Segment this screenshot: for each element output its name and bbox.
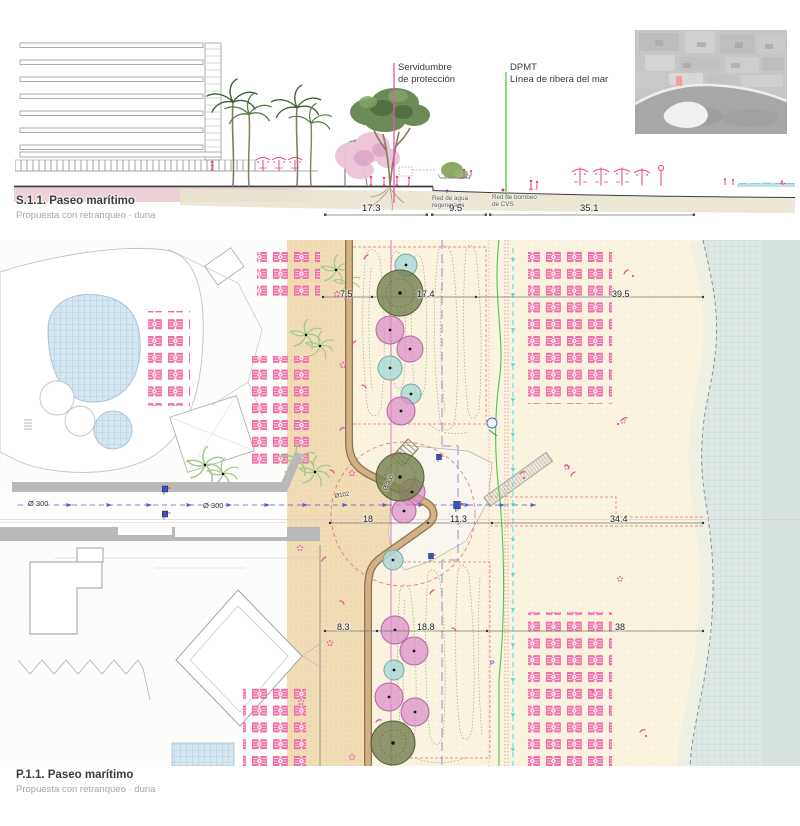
minimap-site-marker (676, 76, 682, 86)
pipe-label-1: Ø 300 (28, 498, 48, 510)
plan-dim-34-4: 34.4 (610, 514, 628, 526)
plan-dim-38: 38 (615, 622, 625, 634)
terrace-grid (148, 311, 190, 406)
section-building (20, 43, 221, 160)
pump-pipe-dot (502, 189, 505, 192)
plan-dim-7-5: 7.5 (340, 289, 353, 301)
plan-drawing (0, 240, 800, 766)
section-arcade (15, 160, 257, 171)
beach-sunbed-grid-bottom (528, 612, 612, 766)
section-subtitle: Propuesta con retranqueo · duna (16, 210, 155, 222)
beach-umbrella-icons (572, 165, 664, 186)
servidumbre-label: Servidumbre de protección (398, 62, 455, 85)
lower-pool (172, 743, 234, 766)
terrace-umbrella-icons (256, 158, 302, 172)
location-minimap (635, 30, 787, 134)
terrace-grid (243, 684, 306, 766)
water-pipe-dot (446, 190, 449, 193)
plan-dim-11-3: 11.3 (450, 514, 467, 526)
red-bombeo-label: Red de bombeo de CVS (492, 194, 537, 208)
section-dim-35-1: 35.1 (580, 203, 599, 215)
plan-dim-17-4: 17.4 (417, 289, 435, 301)
dpmt-label: DPMT Línea de ribera del mar (510, 62, 608, 85)
parking-letter: P (490, 658, 494, 670)
terrace-grid (257, 250, 320, 302)
shower-pole-icon (658, 165, 663, 186)
plan-subtitle: Propuesta con retranqueo · duna (16, 784, 155, 796)
plan-dim-39-5: 39.5 (612, 289, 630, 301)
beach-sunbed-grid-top (528, 252, 612, 404)
plan-dim-18-8: 18.8 (417, 622, 435, 634)
minimap-city-blocks (635, 31, 785, 87)
pipe-label-2: Ø 300 (203, 500, 223, 512)
drawing-sheet: Servidumbre de protección DPMT Línea de … (0, 0, 800, 826)
section-dim-9-5: 9.5 (449, 203, 462, 215)
section-dim-17-3: 17.3 (362, 203, 381, 215)
plan-dim-8-3: 8.3 (337, 622, 350, 634)
terrace-grid (251, 356, 314, 466)
section-title: S.1.1. Paseo marítimo (16, 196, 135, 208)
plan-title: P.1.1. Paseo marítimo (16, 770, 133, 782)
plan-dim-18: 18 (363, 514, 373, 526)
pump-box-outline (399, 167, 412, 176)
dune-bush (438, 162, 470, 179)
small-pool (94, 411, 132, 449)
